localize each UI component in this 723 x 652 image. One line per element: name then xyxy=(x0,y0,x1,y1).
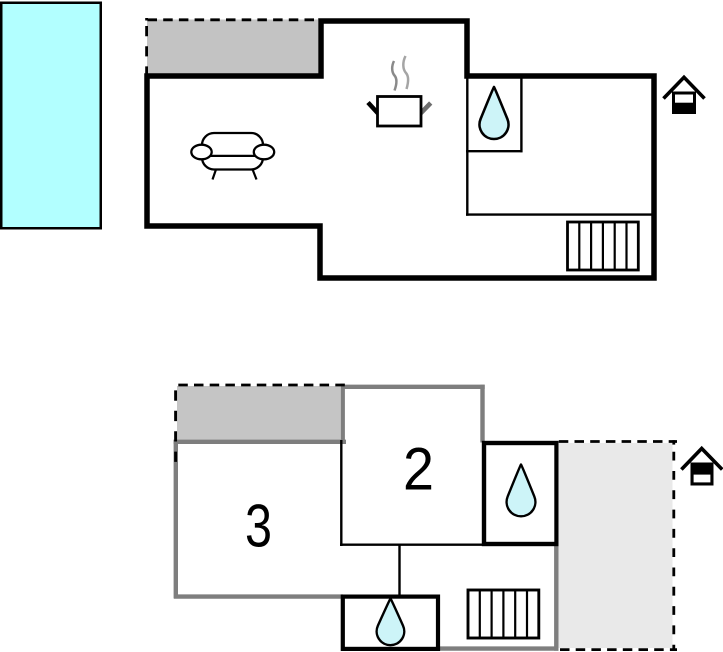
svg-text:3: 3 xyxy=(245,492,272,560)
svg-text:2: 2 xyxy=(403,435,434,503)
